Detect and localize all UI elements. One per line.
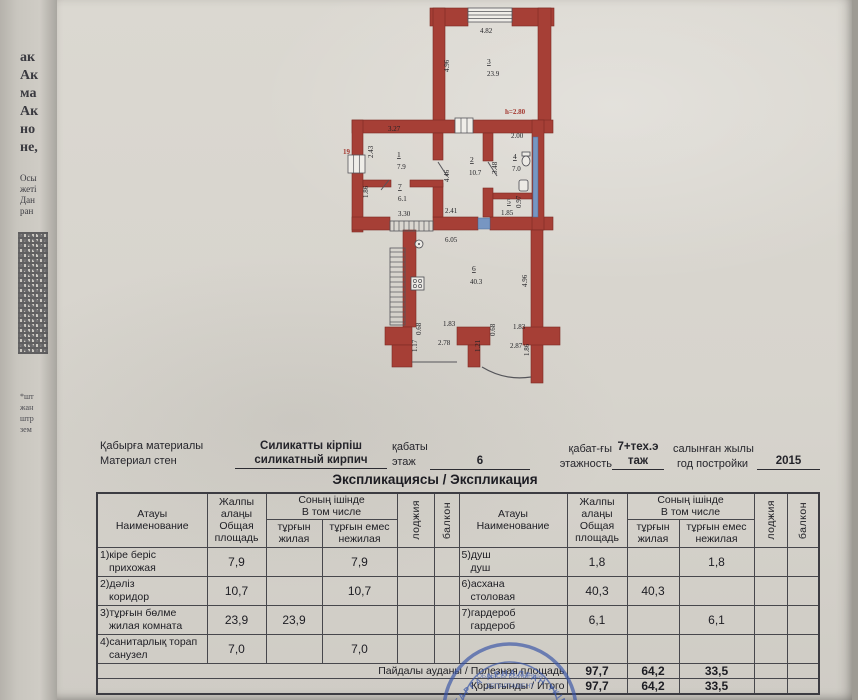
- year-label-kk: салынған жылы: [673, 443, 754, 455]
- plan-dimension-label: 1.86: [523, 343, 531, 356]
- table-row: 4)санитарлық торапсанузел 7,0 7,0: [97, 634, 819, 663]
- table-row: 1)кіре берісприхожая 7,9 7,9 5)душдуш 1,…: [97, 547, 819, 576]
- plan-dimension-label: 2.87: [510, 342, 523, 350]
- floor-label-ru: этаж: [392, 456, 416, 468]
- plan-dimension-label: 4.96: [521, 274, 529, 287]
- col-header-loggia-right: лоджия: [754, 493, 787, 547]
- plan-dimension-label: 6.1: [398, 195, 407, 203]
- plan-dimension-label: 23.9: [487, 70, 500, 78]
- plan-dimension-label: 3.27: [388, 125, 401, 133]
- wall: [392, 345, 412, 367]
- window: [455, 118, 473, 133]
- bg-text-fragment: зем: [20, 425, 32, 434]
- bg-text-fragment: не,: [20, 140, 38, 156]
- wall-material-label-ru: Материал стен: [100, 455, 177, 467]
- wall-material-label-kk: Қабырға материалы: [100, 440, 203, 452]
- plan-dimension-label: 10.7: [469, 169, 482, 177]
- stove-fixture: [411, 277, 424, 290]
- col-header-balcony-left: балкон: [434, 493, 459, 547]
- col-header-nonliving-left: тұрғын емеснежилая: [322, 519, 397, 547]
- year-built: 2015: [776, 455, 802, 469]
- plan-dimension-label: 0.68: [415, 322, 423, 335]
- glazing: [533, 137, 538, 217]
- total-row: Қорытынды / Итого 97,7 64,2 33,5: [97, 678, 819, 694]
- col-header-including-right: Соның ішіндеВ том числе: [627, 493, 754, 519]
- plan-dimension-label: 4.46: [443, 169, 451, 182]
- plan-dimension-label: 6: [472, 264, 476, 273]
- plan-dimension-label: 2.00: [511, 132, 524, 140]
- col-header-living-left: тұрғынжилая: [266, 519, 322, 547]
- wall-material-value-kk: Силикатты кірпіш: [235, 440, 387, 454]
- wall: [523, 327, 560, 345]
- explication-table: АтауыНаименование Жалпы алаңыОбщая площа…: [96, 492, 820, 695]
- wall-material-value-ru: силикатный кирпич: [235, 454, 387, 468]
- col-header-balcony-right: балкон: [787, 493, 819, 547]
- bg-text-fragment: ак: [20, 50, 35, 66]
- plan-dimension-label: 7.9: [397, 163, 406, 171]
- floor-value: 6: [430, 441, 530, 470]
- storeys-value-top: 7+тех.э: [612, 441, 664, 455]
- col-header-name-left: АтауыНаименование: [97, 493, 207, 547]
- plan-dimension-label: 1.83: [513, 323, 526, 331]
- plan-dimension-label: 2.78: [438, 339, 451, 347]
- storeys-value: 7+тех.э таж: [612, 441, 664, 470]
- storeys-label-ru: этажность: [540, 458, 612, 470]
- col-header-total-left: Жалпы алаңыОбщая площадь: [207, 493, 266, 547]
- plan-dimension-label: 3.48: [491, 161, 499, 174]
- hatch: [390, 221, 433, 231]
- plan-dimension-label: 0.68: [489, 323, 497, 336]
- bg-text-fragment: штр: [20, 414, 34, 423]
- plan-dimension-label: h=2.80: [505, 108, 526, 116]
- col-header-nonliving-right: тұрғын емеснежилая: [679, 519, 754, 547]
- wall: [433, 133, 443, 160]
- plan-dimension-label: 1.85: [501, 209, 514, 217]
- table-row: 2)дәлізкоридор 10,7 10,7 6)асханастолова…: [97, 576, 819, 605]
- plan-dimension-label: 4.96: [443, 59, 451, 72]
- glazing: [478, 218, 490, 229]
- plan-dimension-label: 2.43: [367, 145, 375, 158]
- wall: [433, 183, 443, 217]
- plan-dimension-label: 5: [507, 197, 511, 206]
- plan-dimension-label: 4: [513, 152, 517, 161]
- qr-code-fragment: [18, 232, 48, 354]
- floor-label-kk: қабаты: [392, 441, 428, 453]
- plan-dimension-label: 1.83: [443, 320, 456, 328]
- door-arc: [482, 367, 531, 378]
- wall: [352, 120, 455, 133]
- explication-title: Экспликациясы / Экспликация: [250, 472, 620, 487]
- wall: [433, 217, 478, 230]
- wall: [410, 180, 443, 187]
- plan-dimension-label: 4.82: [480, 27, 493, 35]
- underlying-page-edge: ак Ак ма Ак но не, Осы жеті Дан ран *шт …: [0, 0, 57, 700]
- plan-dimension-label: 19: [343, 148, 351, 156]
- plan-dimension-label: 1.17: [411, 339, 419, 352]
- wall: [385, 327, 412, 345]
- wall: [483, 188, 493, 217]
- wall-material-value: Силикатты кірпіш силикатный кирпич: [235, 440, 387, 469]
- bg-text-fragment: но: [20, 122, 35, 138]
- plan-dimension-label: 2.41: [445, 207, 458, 215]
- bg-text-fragment: Осы: [20, 173, 37, 183]
- plan-dimension-label: 1: [397, 150, 401, 159]
- bg-text-fragment: *шт: [20, 392, 34, 401]
- bg-text-fragment: Дан: [20, 195, 35, 205]
- wall: [352, 217, 390, 230]
- year-value: 2015: [757, 441, 820, 470]
- col-header-loggia-left: лоджия: [397, 493, 434, 547]
- plan-dimension-label: 3: [487, 57, 491, 66]
- wall: [531, 230, 543, 383]
- plan-dimension-label: 1.86: [362, 185, 370, 198]
- wall: [538, 8, 551, 132]
- wall: [483, 133, 493, 161]
- plan-dimension-label: 6.05: [445, 236, 458, 244]
- bg-text-fragment: жан: [20, 403, 33, 412]
- storeys-label-kk: қабат-ғы: [540, 443, 612, 455]
- plan-dimension-label: 40.3: [470, 278, 483, 286]
- bg-text-fragment: ма: [20, 86, 36, 102]
- table-row: 3)тұрғын бөлмежилая комната 23,9 23,9 7)…: [97, 605, 819, 634]
- plan-dimension-label: 7.0: [512, 165, 521, 173]
- col-header-including-left: Соның ішіндеВ том числе: [266, 493, 397, 519]
- bg-text-fragment: Ак: [20, 104, 38, 120]
- col-header-name-right: АтауыНаименование: [459, 493, 567, 547]
- year-label-ru: год постройки: [677, 458, 748, 470]
- wall: [352, 120, 363, 157]
- plan-dimension-label: 3.30: [398, 210, 411, 218]
- col-header-total-right: Жалпы алаңыОбщая площадь: [567, 493, 627, 547]
- bg-text-fragment: жеті: [20, 184, 37, 194]
- toilet-fixture: [522, 152, 530, 156]
- plan-dimension-label: 7: [398, 182, 402, 191]
- fixture: [519, 180, 528, 191]
- useful-area-row: Пайдалы ауданы / Полезная площадь 97,7 6…: [97, 663, 819, 678]
- window: [348, 155, 365, 173]
- plan-dimension-label: 1.21: [474, 339, 482, 352]
- col-header-living-right: тұрғынжилая: [627, 519, 679, 547]
- bg-text-fragment: ран: [20, 206, 33, 216]
- floor-plan-drawing: 4.824.96323.9h=2.803.27192.4317.92.00210…: [335, 0, 570, 390]
- plan-dimension-label: 0.97: [515, 195, 523, 208]
- bg-text-fragment: Ак: [20, 68, 38, 84]
- plan-dimension-label: 2: [470, 155, 474, 164]
- storeys-value-bottom: таж: [612, 455, 664, 469]
- floor-number: 6: [477, 455, 483, 469]
